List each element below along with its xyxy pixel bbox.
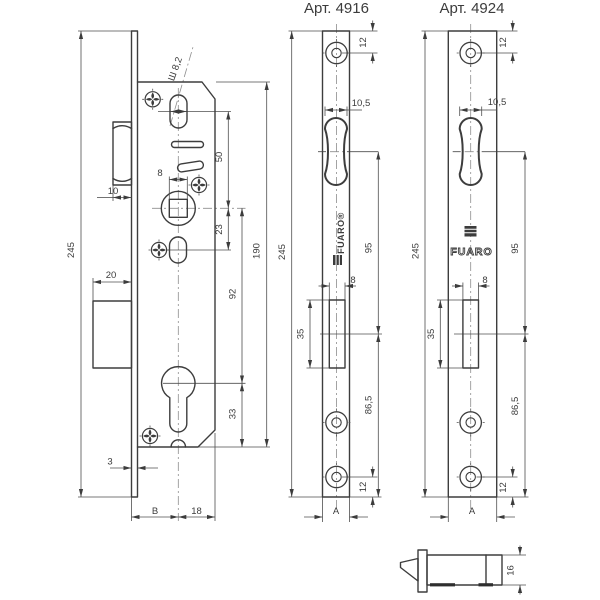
fuaro-logo-mark xyxy=(465,226,477,237)
lock-case-outline xyxy=(138,82,216,447)
dim-label-50: 50 xyxy=(214,152,225,163)
dim-label-33: 33 xyxy=(228,409,239,420)
dim-label-height: 245 xyxy=(410,243,421,259)
dim-label-12-top: 12 xyxy=(358,37,369,48)
dim-label-height: 245 xyxy=(66,242,77,258)
dim-label-16: 16 xyxy=(506,565,517,576)
ext-245 xyxy=(78,31,132,497)
phillips-screw-icon xyxy=(149,240,170,261)
dim-label-height: 245 xyxy=(277,244,288,260)
dim-label-3: 3 xyxy=(107,457,112,468)
dim-label-10-5: 10,5 xyxy=(488,97,507,108)
dim-label-190: 190 xyxy=(252,243,263,259)
dim-label-8: 8 xyxy=(157,168,162,179)
dim-label-8: 8 xyxy=(350,275,355,286)
dim-label-95: 95 xyxy=(510,243,521,254)
article-title-4924: Арт. 4924 xyxy=(440,0,505,17)
dim-label-86-5: 86,5 xyxy=(364,396,375,415)
fuaro-logo-mark xyxy=(333,255,342,265)
curved-slot-hole xyxy=(177,161,204,173)
ext-roller xyxy=(325,107,347,117)
dim-label-A: A xyxy=(333,506,340,517)
latch-body xyxy=(427,555,502,585)
dim-label-18: 18 xyxy=(191,506,202,517)
ext-245 xyxy=(289,31,323,497)
dim-label-B: B xyxy=(152,506,158,517)
dim-label-8: 8 xyxy=(482,275,487,286)
fuaro-logo-horizontal: FUARO xyxy=(450,246,492,258)
lock-technical-drawing: 245 Ш 8,2 50 8 10 23 92 190 20 33 3 B 18… xyxy=(0,0,600,600)
dim-label-12-top: 12 xyxy=(498,37,509,48)
phillips-screw-icon xyxy=(140,426,161,447)
dim-label-20: 20 xyxy=(106,270,117,281)
phillips-screw-icon xyxy=(142,89,163,110)
dim-label-12-bottom: 12 xyxy=(498,482,509,493)
latch-head-wedge xyxy=(401,559,419,582)
dim-label-23: 23 xyxy=(214,224,225,235)
dim-label-slot-note: Ш 8,2 xyxy=(166,56,185,83)
slot-hole xyxy=(172,142,204,148)
lock-body-side-view: 245 Ш 8,2 50 8 10 23 92 190 20 33 3 B 18 xyxy=(66,31,270,521)
deadbolt xyxy=(93,301,132,368)
faceplate-section xyxy=(418,550,427,592)
dim-label-35: 35 xyxy=(296,329,307,340)
ext-245 xyxy=(422,31,449,497)
dim-label-95: 95 xyxy=(364,243,375,254)
technical-drawing-page: 245 Ш 8,2 50 8 10 23 92 190 20 33 3 B 18… xyxy=(0,0,600,600)
latch-bolt-detail-view: 16 xyxy=(401,546,527,595)
phillips-screw-icon xyxy=(189,175,210,196)
faceplate-edge xyxy=(132,31,138,497)
article-title-4916: Арт. 4916 xyxy=(304,0,369,17)
dim-label-12-bottom: 12 xyxy=(358,482,369,493)
faceplate-4924-view: Арт. 4924 FUARO xyxy=(410,0,528,522)
fuaro-logo-vertical: FUARO® xyxy=(336,212,346,254)
latch-bolt xyxy=(113,122,132,185)
ext-190 xyxy=(198,82,270,447)
dim-label-10: 10 xyxy=(108,186,119,197)
dim-label-92: 92 xyxy=(228,289,239,300)
contact-strip xyxy=(430,583,455,586)
contact-strip xyxy=(479,583,494,586)
ext-8 xyxy=(329,283,345,301)
dim-label-10-5: 10,5 xyxy=(352,98,371,109)
latch-bolt-bevels xyxy=(113,126,132,182)
dim-label-A: A xyxy=(469,506,476,517)
faceplate-4916-view: Арт. 4916 FUARO® xyxy=(277,0,382,522)
dim-label-35: 35 xyxy=(426,329,437,340)
ext-bottom xyxy=(132,433,216,521)
dim-label-86-5: 86,5 xyxy=(510,397,521,416)
